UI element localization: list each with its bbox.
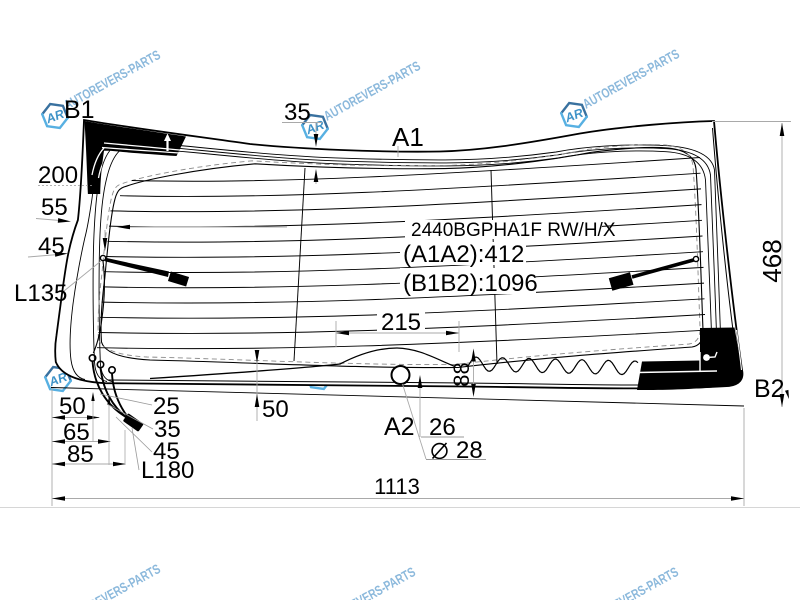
svg-text:88: 88 <box>449 362 474 386</box>
svg-text:215: 215 <box>381 309 421 336</box>
svg-text:1113: 1113 <box>374 474 420 499</box>
svg-text:200: 200 <box>38 162 78 189</box>
svg-text:50: 50 <box>262 396 289 423</box>
svg-text:(A1A2):412: (A1A2):412 <box>403 241 524 268</box>
svg-text:35: 35 <box>284 99 311 126</box>
svg-text:(B1B2):1096: (B1B2):1096 <box>403 270 538 297</box>
svg-text:2440BGPHA1F RW/H/X: 2440BGPHA1F RW/H/X <box>411 220 616 241</box>
svg-text:28: 28 <box>456 437 483 464</box>
svg-text:55: 55 <box>41 194 68 221</box>
svg-text:A1: A1 <box>392 122 424 152</box>
svg-text:L180: L180 <box>141 457 194 484</box>
svg-text:468: 468 <box>757 239 787 282</box>
svg-text:A2: A2 <box>384 413 415 441</box>
svg-text:B2: B2 <box>754 375 785 403</box>
svg-text:L135: L135 <box>14 280 67 307</box>
svg-text:B1: B1 <box>64 96 95 124</box>
